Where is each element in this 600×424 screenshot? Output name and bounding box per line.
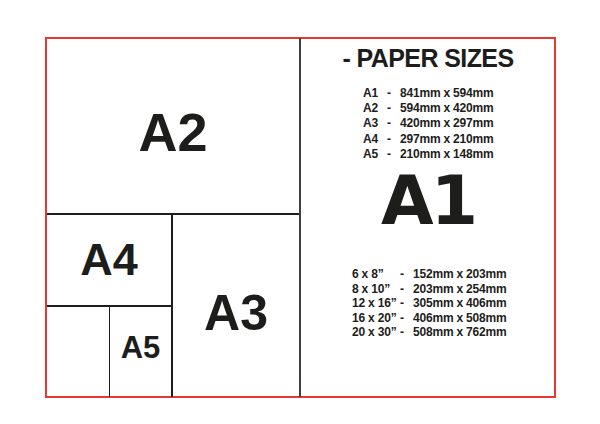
inch-series-size-list: 6 x 8” - 152mm x 203mm 8 x 10” - 203mm x… <box>352 267 506 340</box>
separator-dash: - <box>387 101 400 115</box>
size-value: 420mm x 297mm <box>400 116 493 130</box>
separator-dash: - <box>400 325 413 339</box>
paper-box-a3: A3 <box>173 215 299 397</box>
featured-size-label: A1 <box>300 167 556 235</box>
separator-dash: - <box>387 147 400 161</box>
size-value: 210mm x 148mm <box>400 147 493 161</box>
size-value: 841mm x 594mm <box>400 86 493 100</box>
paper-box-a5: A5 <box>109 307 173 397</box>
paper-box-a4: A4 <box>47 215 173 307</box>
size-row: A4 - 297mm x 210mm <box>363 131 493 146</box>
size-value: 406mm x 508mm <box>413 311 506 325</box>
size-row: 20 x 30” - 508mm x 762mm <box>352 325 506 340</box>
size-row: 6 x 8” - 152mm x 203mm <box>352 267 506 282</box>
separator-dash: - <box>400 267 413 281</box>
size-row: A3 - 420mm x 297mm <box>363 116 493 131</box>
separator-dash: - <box>400 282 413 296</box>
separator-dash: - <box>387 116 400 130</box>
size-value: 305mm x 406mm <box>413 296 506 310</box>
a-series-size-list: A1 - 841mm x 594mm A2 - 594mm x 420mm A3… <box>363 85 493 162</box>
size-name: 20 x 30” <box>352 325 400 339</box>
size-name: A5 <box>363 147 387 161</box>
size-row: 8 x 10” - 203mm x 254mm <box>352 282 506 297</box>
size-value: 152mm x 203mm <box>413 267 506 281</box>
size-name: 8 x 10” <box>352 282 400 296</box>
size-value: 594mm x 420mm <box>400 101 493 115</box>
paper-label-a4: A4 <box>80 234 138 286</box>
paper-label-a3: A3 <box>204 284 268 342</box>
paper-sizes-infographic: A2 A4 A5 A3 - PAPER SIZES A1 - 841mm x 5… <box>0 0 600 424</box>
paper-box-empty <box>47 307 110 397</box>
size-name: A3 <box>363 116 387 130</box>
size-name: A2 <box>363 101 387 115</box>
size-row: 12 x 16” - 305mm x 406mm <box>352 296 506 311</box>
panel-title: - PAPER SIZES <box>300 44 556 73</box>
size-row: A5 - 210mm x 148mm <box>363 147 493 162</box>
size-value: 203mm x 254mm <box>413 282 506 296</box>
size-name: A4 <box>363 132 387 146</box>
separator-dash: - <box>387 132 400 146</box>
paper-box-a2: A2 <box>47 39 299 215</box>
size-name: A1 <box>363 86 387 100</box>
size-value: 508mm x 762mm <box>413 325 506 339</box>
size-name: 12 x 16” <box>352 296 400 310</box>
paper-label-a5: A5 <box>121 330 161 366</box>
size-name: 6 x 8” <box>352 267 400 281</box>
size-value: 297mm x 210mm <box>400 132 493 146</box>
size-row: A1 - 841mm x 594mm <box>363 85 493 100</box>
size-row: 16 x 20” - 406mm x 508mm <box>352 311 506 326</box>
separator-dash: - <box>400 311 413 325</box>
size-name: 16 x 20” <box>352 311 400 325</box>
size-row: A2 - 594mm x 420mm <box>363 100 493 115</box>
separator-dash: - <box>387 86 400 100</box>
separator-dash: - <box>400 296 413 310</box>
paper-label-a2: A2 <box>138 101 207 163</box>
